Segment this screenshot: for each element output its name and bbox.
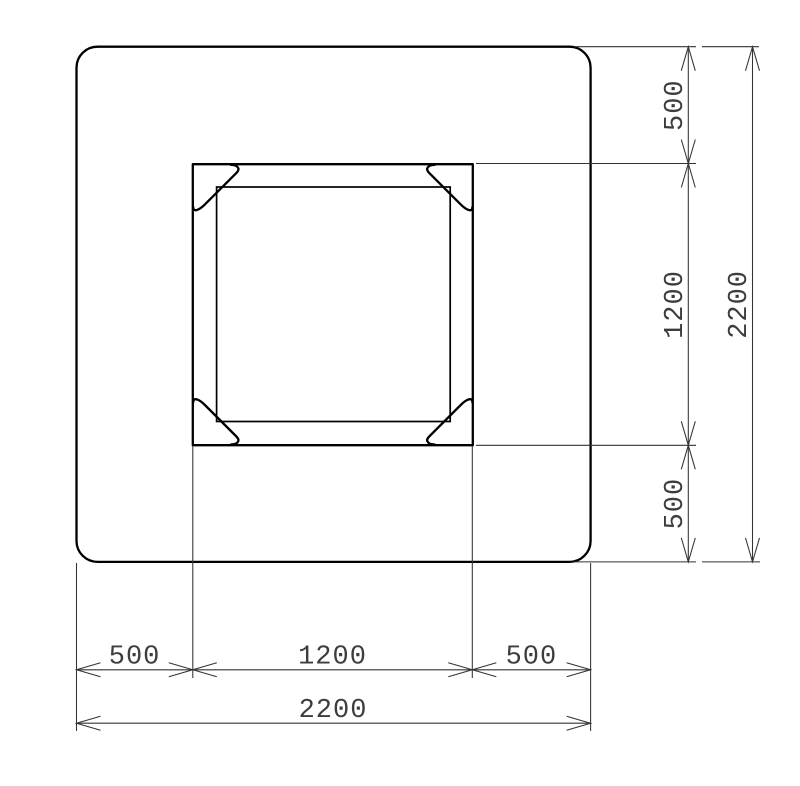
column-outer-outline [193,164,473,445]
dim-label-bottom-center: 1200 [298,642,367,672]
arrowheads [77,47,760,731]
footing-outline [77,47,591,562]
corner-fillets [193,165,472,445]
dim-label-bottom-right: 500 [506,642,558,672]
dim-label-right-bottom: 500 [661,478,691,530]
dim-label-right-middle: 1200 [661,270,691,339]
dim-label-right-top: 500 [661,79,691,131]
technical-drawing: 500 1200 500 2200 500 1200 500 2200 [0,0,800,786]
column-inner-outline [217,187,451,422]
extension-lines [77,47,761,731]
dim-label-right-overall: 2200 [725,270,755,339]
dim-label-bottom-overall: 2200 [299,696,368,726]
dim-label-bottom-left: 500 [109,642,161,672]
drawing-canvas: 500 1200 500 2200 500 1200 500 2200 [0,0,800,786]
dimension-lines [77,47,753,724]
